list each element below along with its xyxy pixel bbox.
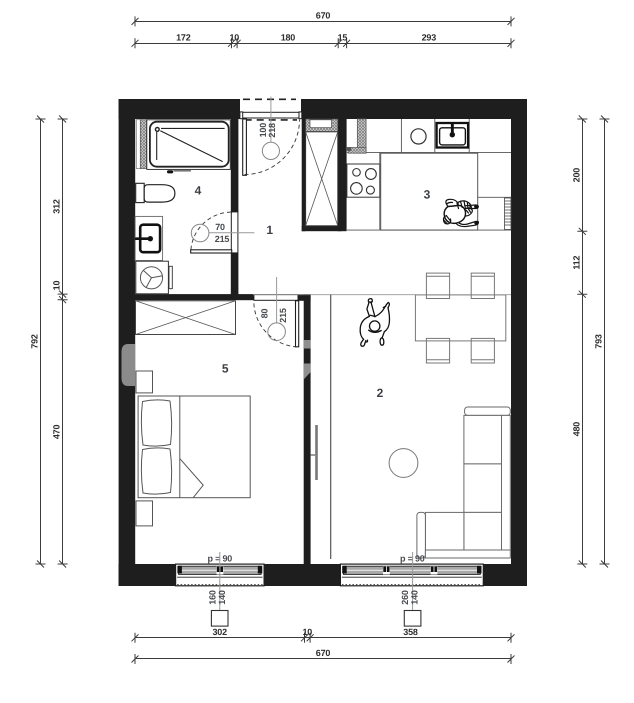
svg-text:10: 10 (302, 627, 312, 637)
svg-text:200: 200 (571, 168, 581, 183)
svg-text:4: 4 (195, 183, 202, 197)
svg-text:10: 10 (229, 32, 239, 42)
svg-text:112: 112 (571, 256, 581, 270)
svg-text:140: 140 (410, 590, 420, 605)
svg-text:670: 670 (316, 10, 331, 20)
svg-text:180: 180 (281, 32, 296, 42)
svg-text:172: 172 (176, 32, 191, 42)
svg-text:670: 670 (316, 648, 331, 658)
svg-text:1: 1 (266, 223, 273, 237)
svg-text:470: 470 (52, 425, 62, 440)
svg-text:293: 293 (422, 32, 437, 42)
svg-text:792: 792 (30, 334, 40, 349)
svg-text:215: 215 (278, 308, 288, 323)
svg-text:10: 10 (52, 281, 62, 291)
svg-text:140: 140 (217, 590, 227, 605)
svg-text:80: 80 (260, 309, 270, 319)
svg-text:215: 215 (215, 234, 230, 244)
svg-text:2: 2 (377, 386, 384, 400)
svg-text:70: 70 (215, 222, 225, 232)
svg-text:15: 15 (338, 32, 348, 42)
svg-text:3: 3 (424, 187, 431, 201)
svg-text:218: 218 (267, 123, 277, 138)
svg-text:793: 793 (594, 334, 604, 349)
svg-text:312: 312 (52, 199, 62, 214)
svg-text:480: 480 (571, 422, 581, 437)
svg-text:302: 302 (212, 627, 227, 637)
svg-text:5: 5 (222, 361, 229, 375)
svg-text:358: 358 (403, 627, 418, 637)
